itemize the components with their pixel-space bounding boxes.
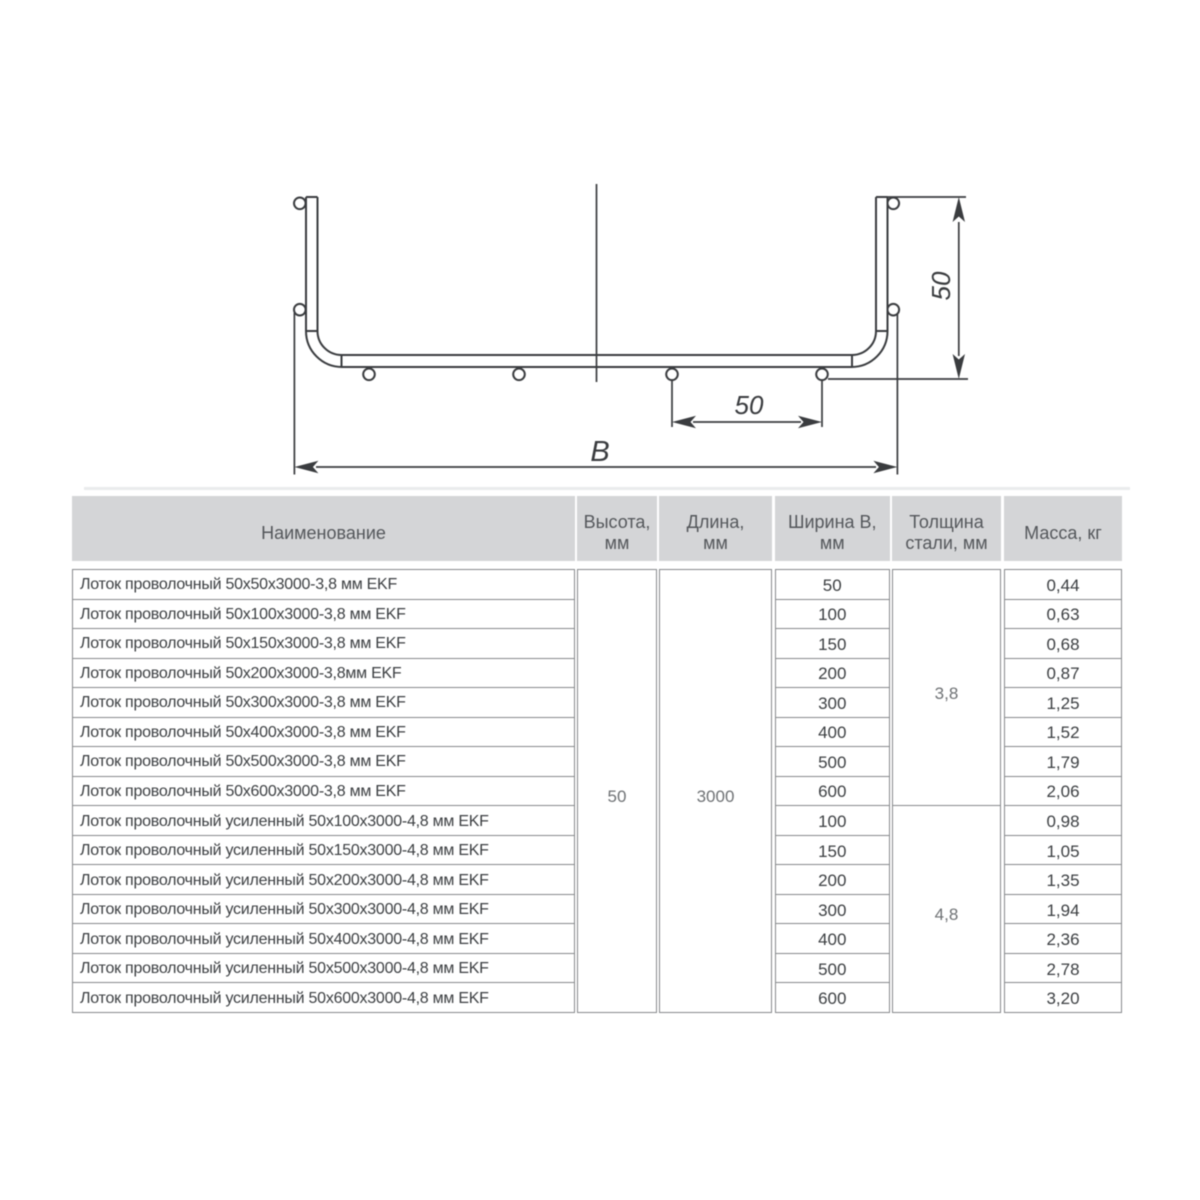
svg-text:50: 50 — [926, 271, 956, 300]
svg-text:50: 50 — [735, 390, 764, 420]
svg-text:B: B — [590, 436, 609, 468]
